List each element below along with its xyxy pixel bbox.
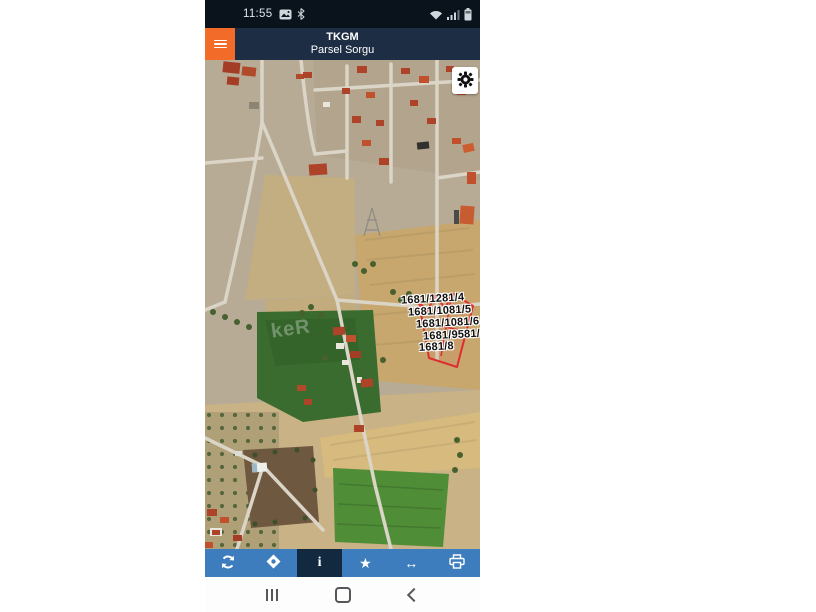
satellite-map[interactable]: keR 1681/1281/4 1681/1081/5 1681/1081/6 … (205, 60, 480, 549)
status-bar: 11:55 (205, 0, 480, 28)
recents-button[interactable] (262, 585, 282, 605)
favorite-button[interactable]: ★ (342, 549, 388, 577)
refresh-button[interactable] (205, 549, 251, 577)
back-button[interactable] (405, 586, 423, 604)
home-button[interactable] (331, 583, 355, 607)
locate-diamond-icon (266, 554, 281, 572)
parcel-label[interactable]: 1681/8 (419, 340, 454, 354)
clock: 11:55 (243, 8, 272, 20)
settings-button[interactable] (452, 67, 478, 94)
map-toolbar: i ★ ↔ (205, 549, 480, 577)
home-icon (335, 587, 351, 603)
wifi-icon (429, 9, 443, 20)
back-chevron-icon (407, 587, 421, 601)
locate-button[interactable] (251, 549, 297, 577)
pan-horizontal-button[interactable]: ↔ (388, 549, 434, 577)
star-icon: ★ (359, 556, 372, 570)
bluetooth-icon (297, 8, 305, 20)
menu-button[interactable] (205, 28, 235, 60)
horizontal-arrows-icon: ↔ (404, 556, 418, 570)
app-title: TKGM (326, 31, 358, 44)
battery-icon (464, 8, 472, 21)
recents-icon (266, 589, 278, 601)
signal-icon (447, 9, 460, 20)
app-header: TKGM Parsel Sorgu (205, 28, 480, 60)
phone-screen: 11:55 TKGM Parsel Sorgu (205, 0, 480, 612)
screenshot-icon (279, 9, 292, 20)
info-icon: i (318, 555, 322, 571)
refresh-icon (220, 554, 236, 573)
print-button[interactable] (434, 549, 480, 577)
info-button[interactable]: i (297, 549, 343, 577)
android-nav-bar (205, 577, 480, 612)
hamburger-icon (214, 40, 227, 49)
app-subtitle: Parsel Sorgu (311, 44, 375, 57)
gear-icon (457, 71, 474, 91)
printer-icon (449, 554, 465, 572)
